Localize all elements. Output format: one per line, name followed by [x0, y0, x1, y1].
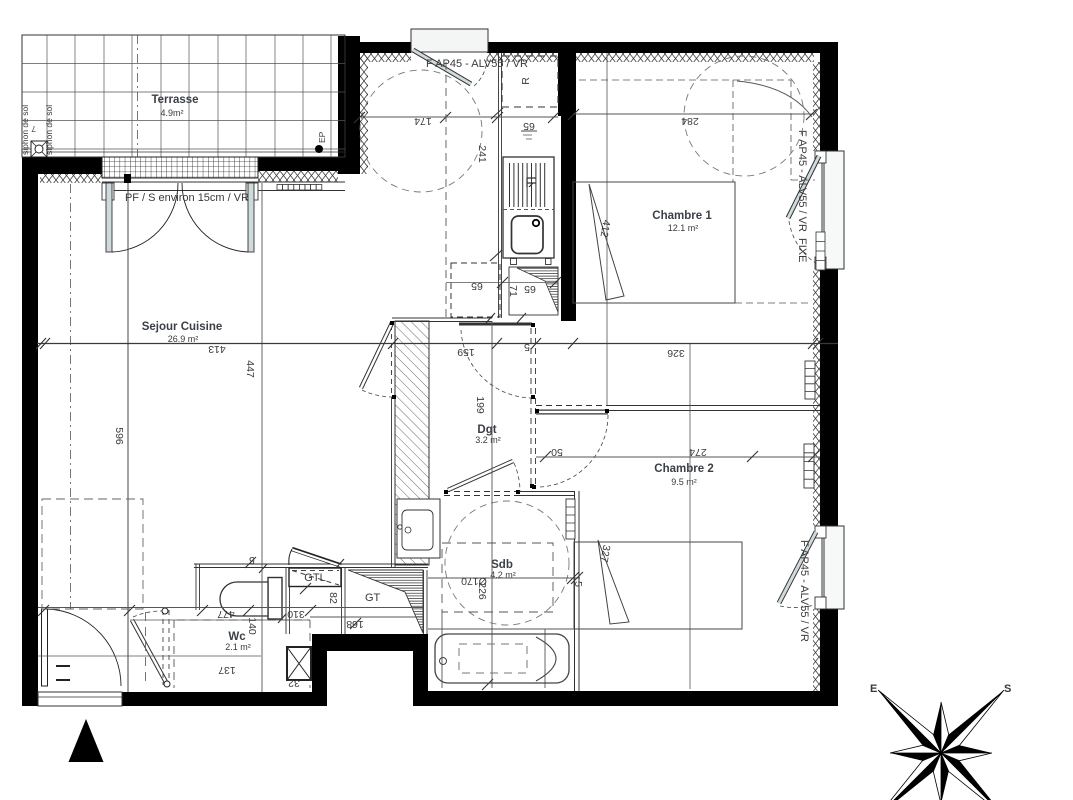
svg-text:5: 5	[524, 341, 530, 353]
svg-text:4.9m²: 4.9m²	[160, 108, 183, 118]
svg-text:F AP45 - ALV55 / VR: F AP45 - ALV55 / VR	[426, 58, 528, 70]
svg-text:GT: GT	[365, 592, 381, 604]
svg-text:284: 284	[681, 115, 699, 127]
svg-text:413: 413	[208, 343, 226, 355]
svg-text:26.9 m²: 26.9 m²	[168, 334, 199, 344]
svg-text:5: 5	[572, 581, 584, 587]
svg-text:326: 326	[667, 347, 685, 359]
svg-text:5: 5	[249, 554, 255, 566]
svg-text:159: 159	[457, 346, 475, 358]
svg-text:12.1 m²: 12.1 m²	[668, 223, 699, 233]
svg-text:65: 65	[523, 120, 535, 132]
svg-text:GTL: GTL	[304, 572, 325, 584]
svg-text:S: S	[1004, 683, 1011, 695]
svg-text:3.2 m²: 3.2 m²	[475, 435, 501, 445]
svg-text:71: 71	[507, 285, 519, 297]
svg-text:Chambre 2: Chambre 2	[654, 463, 713, 475]
svg-text:siphon de sol: siphon de sol	[44, 105, 54, 155]
svg-text:Sejour Cuisine: Sejour Cuisine	[142, 321, 223, 333]
svg-text:477: 477	[217, 608, 235, 620]
svg-text:EP: EP	[317, 131, 327, 143]
svg-text:137: 137	[218, 664, 236, 676]
svg-text:Terrasse: Terrasse	[151, 94, 198, 106]
svg-text:2.1 m²: 2.1 m²	[225, 642, 251, 652]
svg-text:241: 241	[476, 145, 488, 163]
svg-text:4.2 m²: 4.2 m²	[490, 570, 516, 580]
svg-text:50: 50	[551, 446, 563, 458]
svg-text:F AP45 - ALV55 / VR FIXE: F AP45 - ALV55 / VR FIXE	[796, 130, 808, 262]
svg-text:F AP45 - ALV55 / VR: F AP45 - ALV55 / VR	[798, 540, 810, 642]
svg-text:274: 274	[689, 446, 707, 458]
svg-text:65: 65	[524, 283, 536, 295]
svg-text:310: 310	[287, 608, 305, 620]
svg-text:596: 596	[113, 427, 125, 445]
svg-text:siphon de sol: siphon de sol	[20, 105, 30, 155]
svg-text:447: 447	[244, 360, 256, 378]
svg-text:226: 226	[476, 582, 488, 600]
svg-text:82: 82	[327, 592, 339, 604]
svg-text:199: 199	[474, 396, 486, 414]
svg-text:Chambre 1: Chambre 1	[652, 210, 712, 222]
svg-text:E: E	[870, 683, 877, 695]
svg-text:65: 65	[471, 280, 483, 292]
svg-text:32: 32	[288, 677, 300, 689]
svg-text:7: 7	[31, 124, 36, 134]
svg-text:174: 174	[414, 115, 432, 127]
svg-text:9.5 m²: 9.5 m²	[671, 477, 697, 487]
svg-text:R: R	[520, 77, 532, 85]
svg-text:PF / S environ 15cm / VR: PF / S environ 15cm / VR	[125, 192, 249, 204]
